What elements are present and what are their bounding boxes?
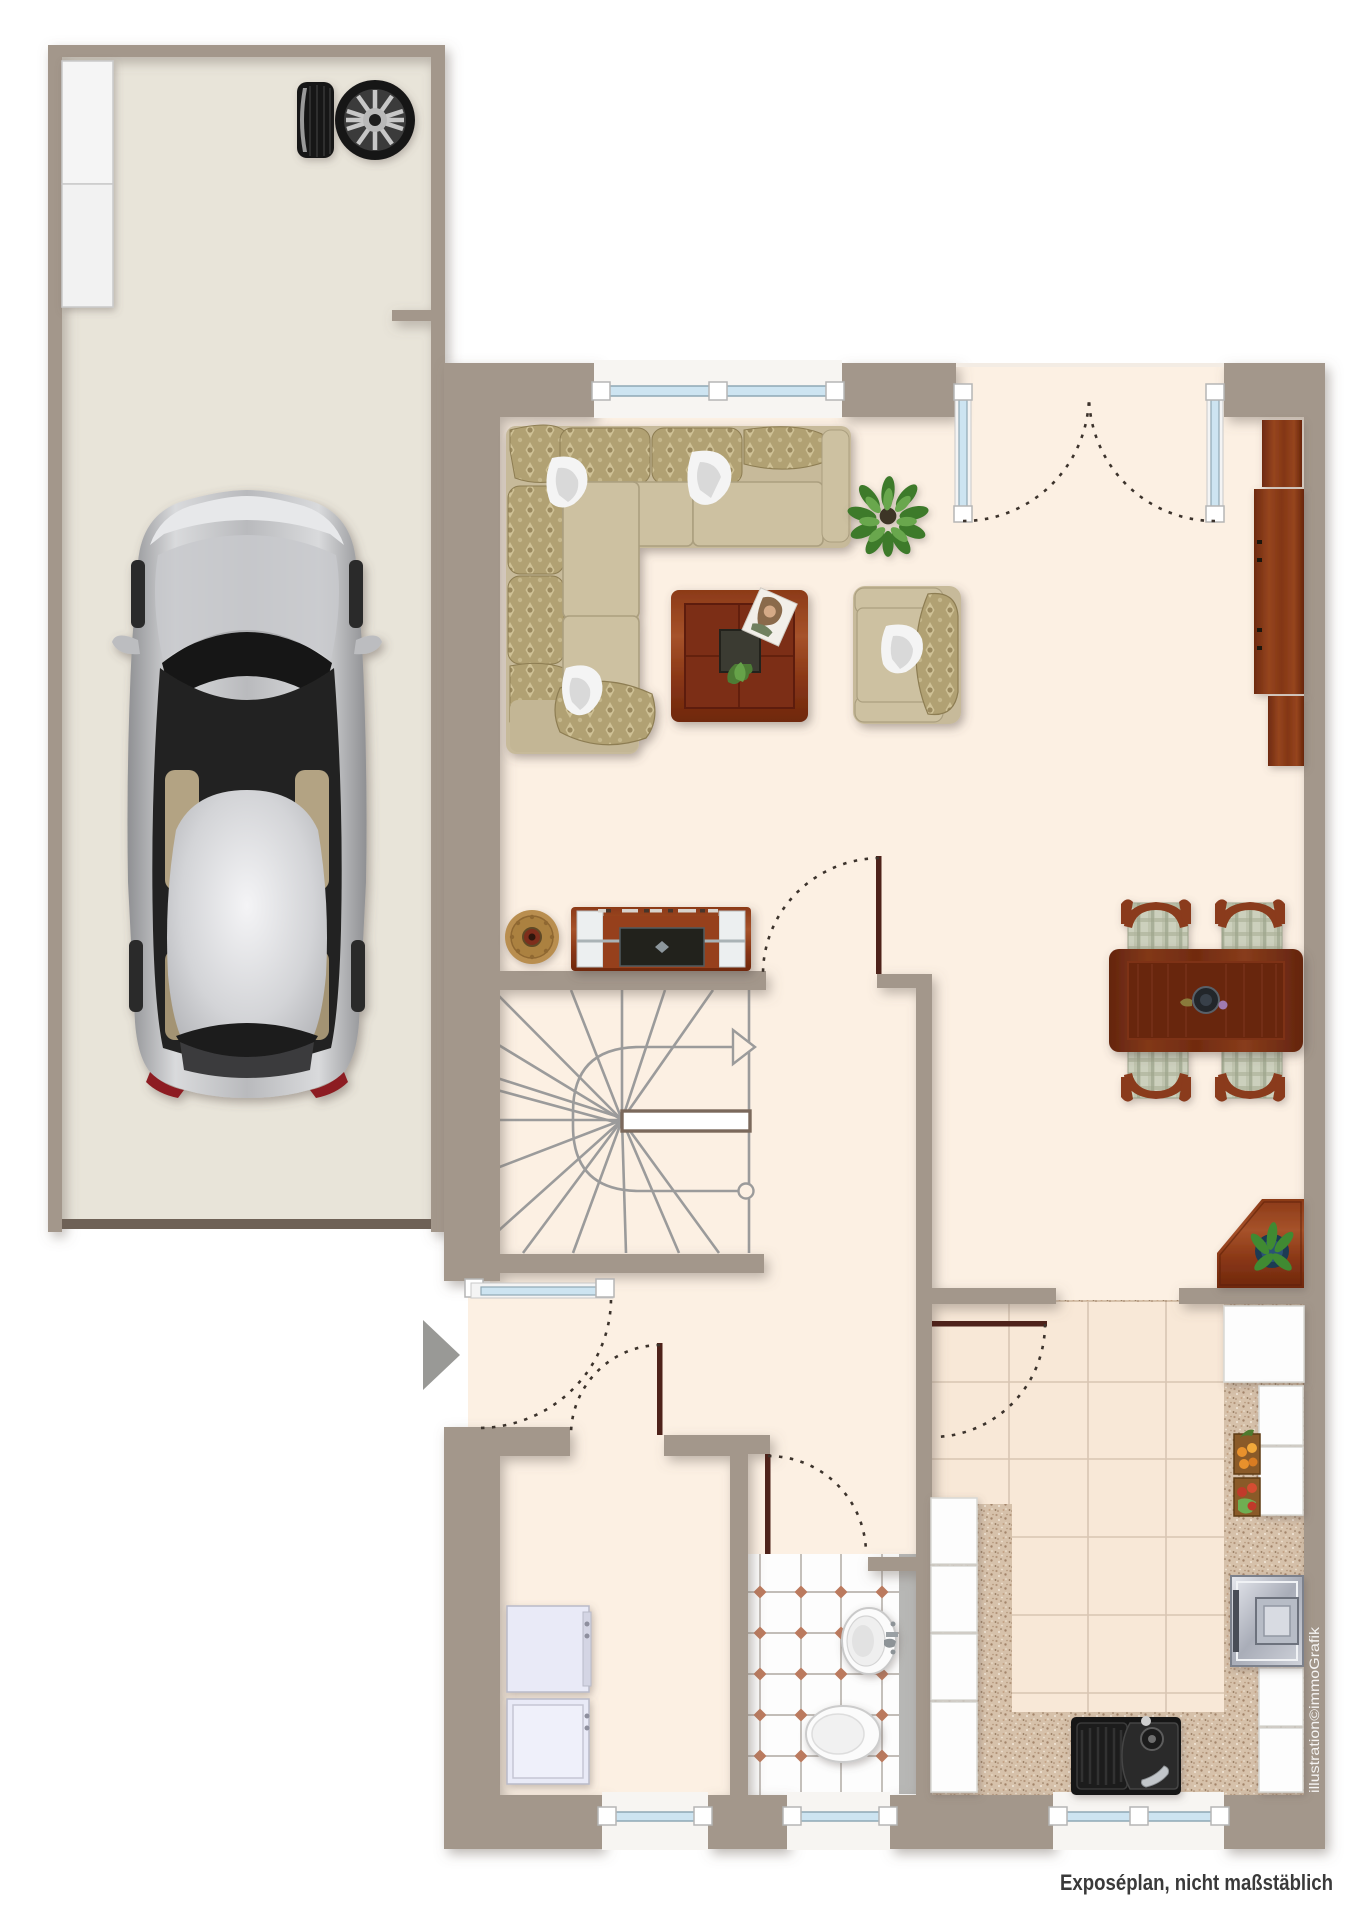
- svg-text:Exposéplan, nicht maßstäblich: Exposéplan, nicht maßstäblich: [1060, 1870, 1333, 1895]
- svg-text:illustration©immoGrafik: illustration©immoGrafik: [1306, 1626, 1322, 1793]
